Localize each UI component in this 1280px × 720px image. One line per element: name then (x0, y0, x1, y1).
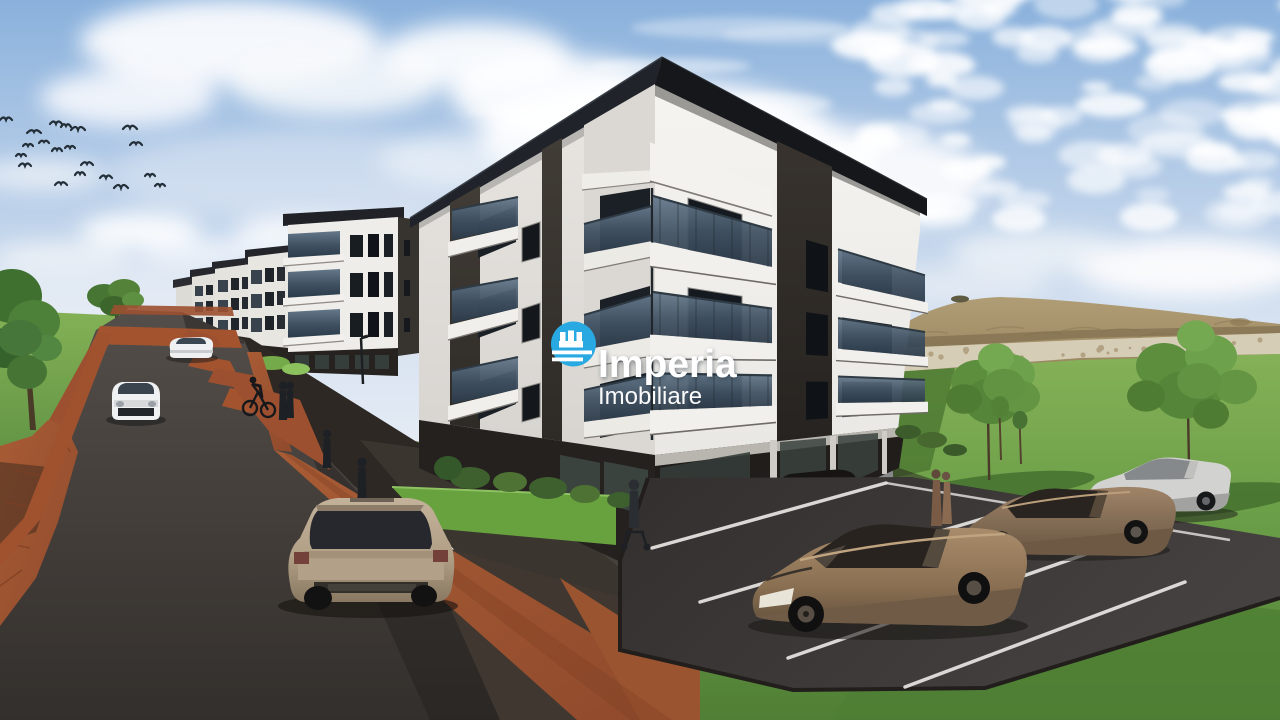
svg-text:Imobiliare: Imobiliare (598, 383, 702, 410)
svg-text:Imperia: Imperia (598, 343, 737, 386)
